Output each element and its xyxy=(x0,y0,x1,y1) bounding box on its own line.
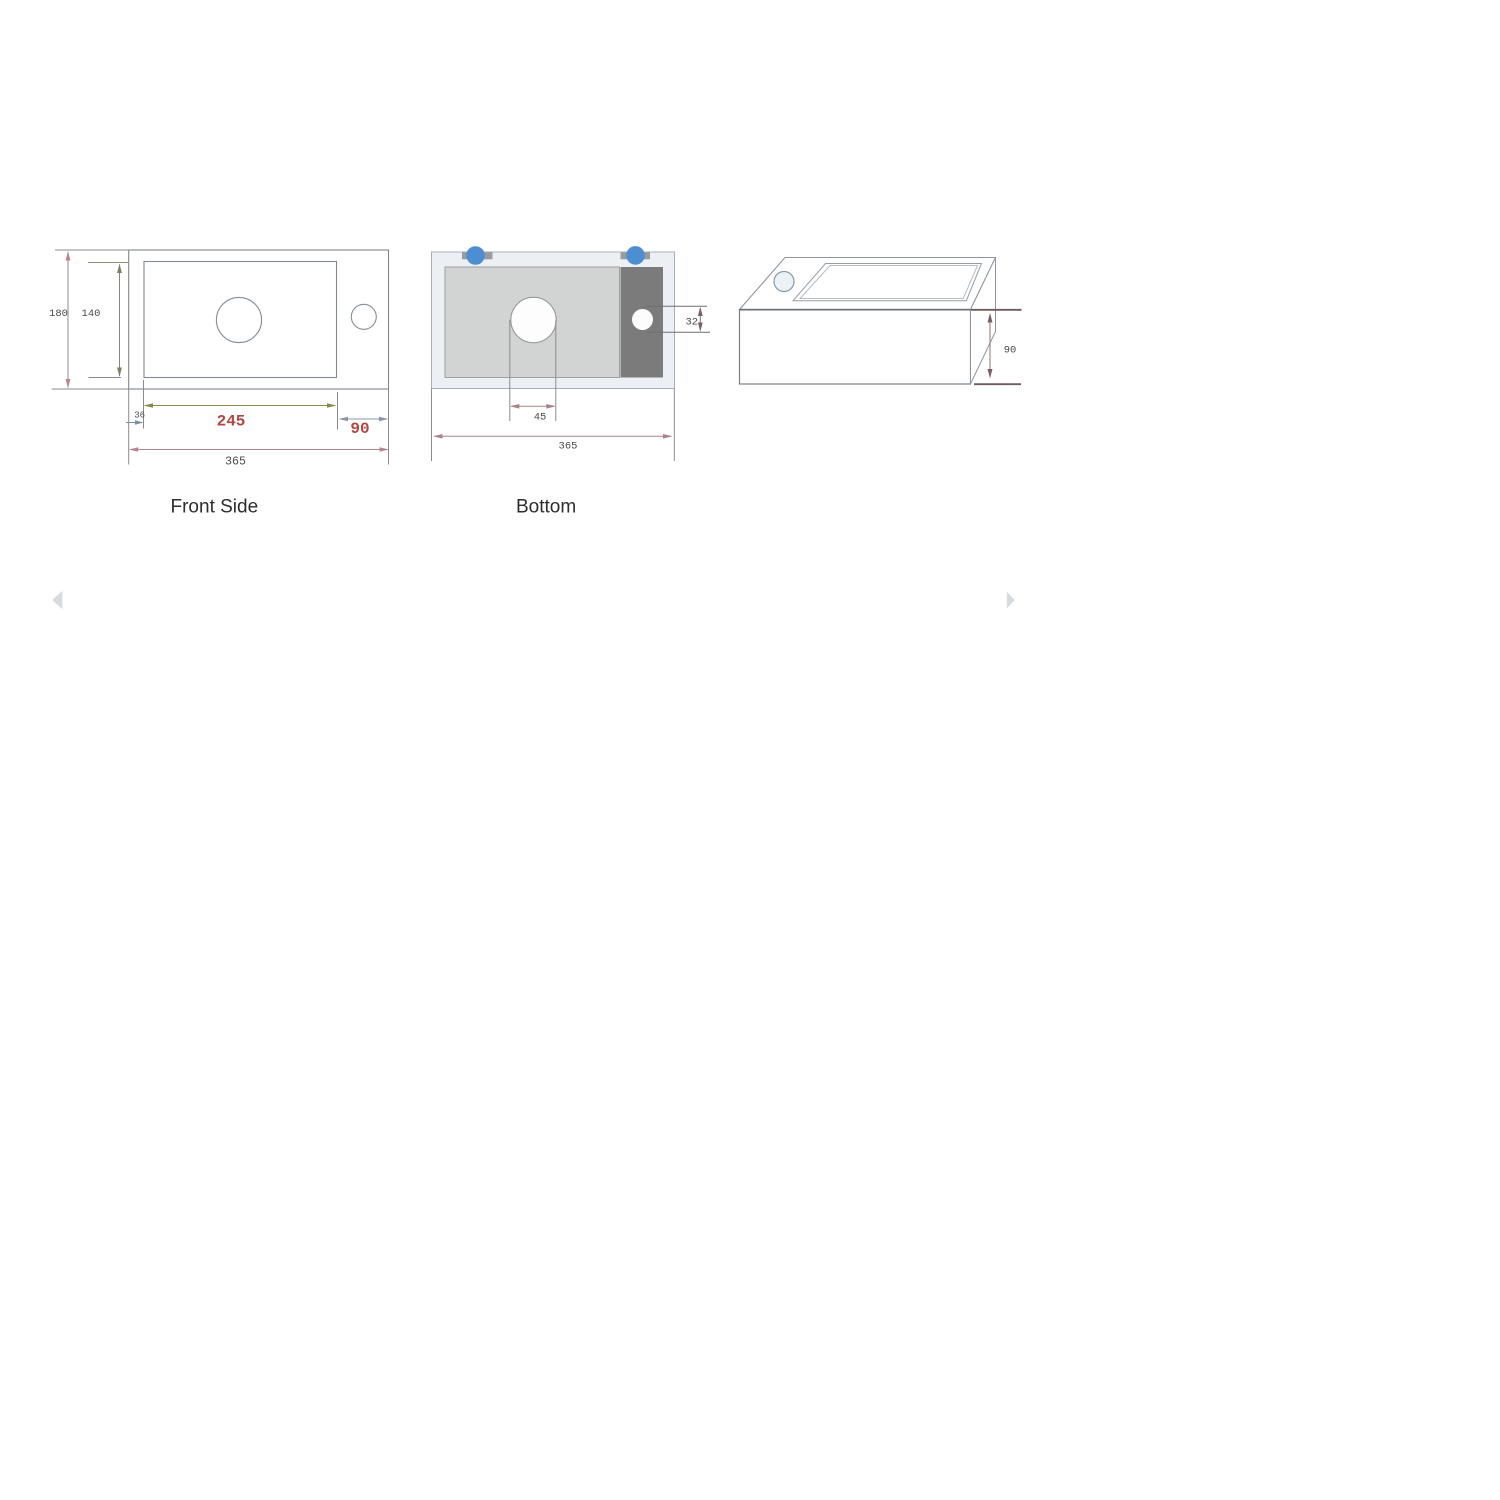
svg-text:Front Side: Front Side xyxy=(171,497,259,518)
svg-text:36: 36 xyxy=(134,411,145,421)
svg-text:365: 365 xyxy=(559,441,578,453)
svg-text:365: 365 xyxy=(225,456,246,469)
svg-text:32: 32 xyxy=(685,317,698,329)
svg-text:245: 245 xyxy=(217,413,246,431)
svg-text:140: 140 xyxy=(82,308,101,320)
svg-text:180: 180 xyxy=(49,308,68,320)
svg-text:90: 90 xyxy=(1004,345,1017,357)
svg-text:90: 90 xyxy=(350,420,369,438)
svg-text:45: 45 xyxy=(534,412,547,424)
svg-text:Bottom: Bottom xyxy=(516,497,576,518)
